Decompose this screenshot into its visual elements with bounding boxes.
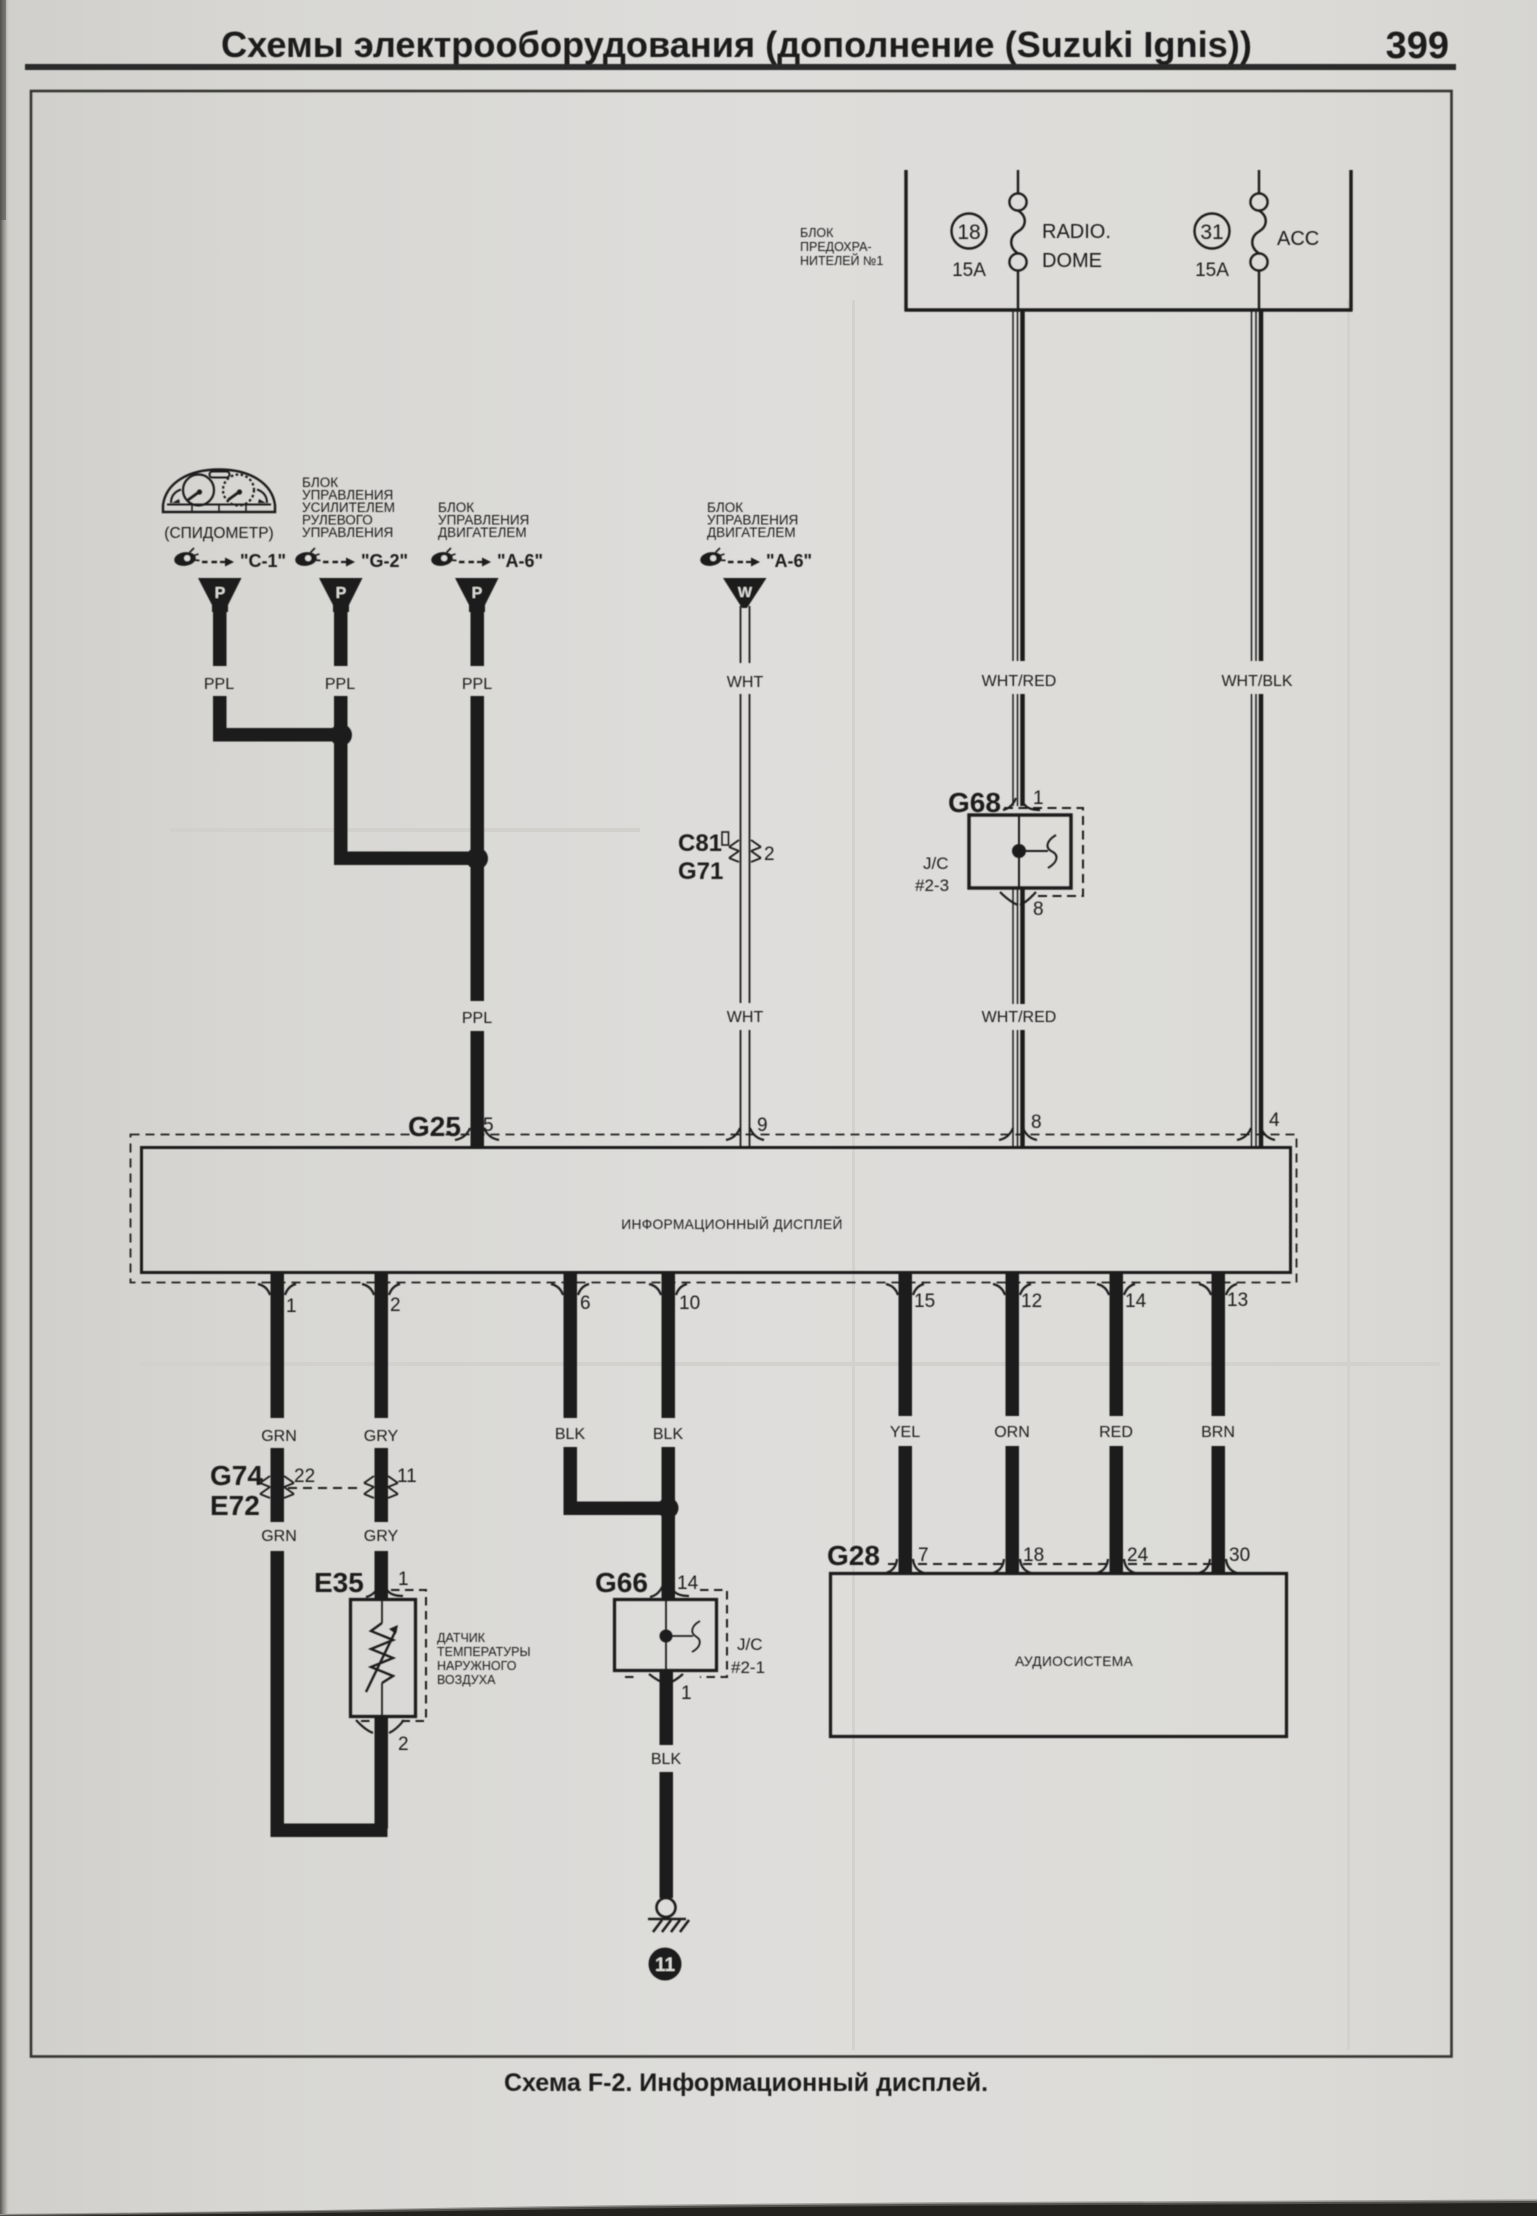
svg-text:12: 12 [1021, 1291, 1042, 1312]
svg-text:C81: C81 [678, 830, 722, 857]
svg-text:#2-3: #2-3 [915, 876, 949, 895]
svg-text:2: 2 [764, 844, 775, 865]
svg-text:J/C: J/C [923, 854, 949, 873]
svg-text:BLK: BLK [653, 1426, 684, 1443]
svg-text:2: 2 [390, 1295, 401, 1316]
svg-text:ТЕМПЕРАТУРЫ: ТЕМПЕРАТУРЫ [437, 1645, 531, 1659]
svg-text:(СПИДОМЕТР): (СПИДОМЕТР) [164, 525, 273, 542]
svg-text:ДВИГАТЕЛЕМ: ДВИГАТЕЛЕМ [438, 525, 527, 540]
svg-text:PPL: PPL [462, 1010, 492, 1027]
svg-text:DOME: DOME [1042, 250, 1102, 272]
svg-text:YEL: YEL [890, 1424, 920, 1441]
svg-text:ДАТЧИК: ДАТЧИК [437, 1631, 486, 1645]
svg-text:9: 9 [757, 1115, 768, 1136]
svg-text:5: 5 [483, 1115, 494, 1136]
svg-text:18: 18 [957, 221, 980, 244]
svg-text:22: 22 [294, 1466, 315, 1487]
svg-text:1: 1 [398, 1569, 409, 1590]
svg-text:G28: G28 [827, 1540, 880, 1571]
svg-text:"A-6": "A-6" [497, 551, 543, 571]
svg-text:PPL: PPL [462, 676, 492, 693]
svg-text:15A: 15A [1195, 260, 1229, 281]
svg-text:10: 10 [679, 1293, 700, 1314]
svg-text:RADIO.: RADIO. [1042, 221, 1111, 243]
svg-text:BRN: BRN [1201, 1424, 1235, 1441]
svg-text:6: 6 [580, 1293, 591, 1314]
svg-text:24: 24 [1127, 1545, 1149, 1566]
svg-text:13: 13 [1227, 1290, 1248, 1311]
svg-text:АУДИОСИСТЕМА: АУДИОСИСТЕМА [1015, 1654, 1134, 1669]
svg-text:399: 399 [1386, 25, 1449, 67]
svg-text:4: 4 [1269, 1110, 1280, 1131]
svg-text:7: 7 [918, 1545, 929, 1566]
svg-text:BLK: BLK [651, 1751, 682, 1768]
svg-text:Схемы электрооборудования (доп: Схемы электрооборудования (дополнение (S… [221, 24, 1252, 65]
svg-text:1: 1 [286, 1296, 297, 1317]
svg-text:P: P [215, 585, 226, 602]
svg-text:ПРЕДОХРА-: ПРЕДОХРА- [800, 240, 872, 254]
svg-text:W: W [738, 584, 753, 601]
svg-text:1: 1 [681, 1683, 692, 1704]
svg-text:11: 11 [397, 1466, 417, 1487]
svg-text:НАРУЖНОГО: НАРУЖНОГО [437, 1659, 517, 1673]
svg-text:WHT: WHT [727, 1009, 764, 1026]
svg-text:НИТЕЛЕЙ №1: НИТЕЛЕЙ №1 [800, 253, 883, 268]
svg-text:J/C: J/C [737, 1635, 763, 1654]
svg-text:WHT/BLK: WHT/BLK [1221, 673, 1292, 690]
svg-text:WHT/RED: WHT/RED [982, 673, 1057, 690]
svg-text:"A-6": "A-6" [766, 551, 812, 571]
svg-text:ORN: ORN [994, 1424, 1030, 1441]
svg-text:14: 14 [1125, 1291, 1147, 1312]
svg-text:"C-1": "C-1" [240, 551, 286, 571]
svg-text:30: 30 [1229, 1545, 1250, 1566]
svg-text:14: 14 [677, 1573, 699, 1594]
svg-text:15A: 15A [952, 260, 986, 281]
svg-text:RED: RED [1099, 1424, 1133, 1441]
svg-text:GRN: GRN [261, 1528, 297, 1545]
svg-text:PPL: PPL [325, 676, 355, 693]
svg-text:8: 8 [1031, 1112, 1042, 1133]
svg-text:ВОЗДУХА: ВОЗДУХА [437, 1673, 496, 1687]
svg-text:BLK: BLK [555, 1426, 586, 1443]
svg-text:8: 8 [1033, 899, 1044, 920]
svg-text:G74: G74 [210, 1460, 263, 1491]
svg-text:18: 18 [1023, 1545, 1044, 1566]
svg-text:G25: G25 [408, 1111, 461, 1142]
svg-text:E35: E35 [314, 1567, 364, 1598]
svg-text:GRN: GRN [261, 1428, 297, 1445]
svg-text:WHT/RED: WHT/RED [982, 1009, 1057, 1026]
svg-text:G71: G71 [678, 858, 723, 885]
svg-text:15: 15 [914, 1291, 935, 1312]
svg-text:ДВИГАТЕЛЕМ: ДВИГАТЕЛЕМ [707, 525, 796, 540]
svg-text:PPL: PPL [204, 676, 234, 693]
svg-text:ИНФОРМАЦИОННЫЙ ДИСПЛЕЙ: ИНФОРМАЦИОННЫЙ ДИСПЛЕЙ [621, 1215, 843, 1232]
svg-text:1: 1 [1033, 788, 1044, 809]
svg-text:GRY: GRY [364, 1528, 399, 1545]
svg-text:P: P [472, 585, 483, 602]
svg-text:2: 2 [398, 1734, 409, 1755]
svg-text:Схема F-2. Информационный дисп: Схема F-2. Информационный дисплей. [504, 2069, 988, 2097]
svg-text:G66: G66 [595, 1567, 648, 1598]
svg-text:11: 11 [655, 1955, 676, 1976]
svg-text:P: P [336, 585, 347, 602]
svg-text:GRY: GRY [364, 1428, 399, 1445]
svg-text:#2-1: #2-1 [731, 1658, 765, 1677]
svg-text:ACC: ACC [1277, 228, 1319, 250]
svg-text:31: 31 [1200, 221, 1223, 244]
svg-text:E72: E72 [210, 1490, 260, 1521]
svg-text:УПРАВЛЕНИЯ: УПРАВЛЕНИЯ [302, 525, 393, 540]
svg-text:WHT: WHT [727, 674, 764, 691]
svg-text:БЛОК: БЛОК [800, 226, 834, 240]
svg-text:"G-2": "G-2" [361, 551, 408, 571]
